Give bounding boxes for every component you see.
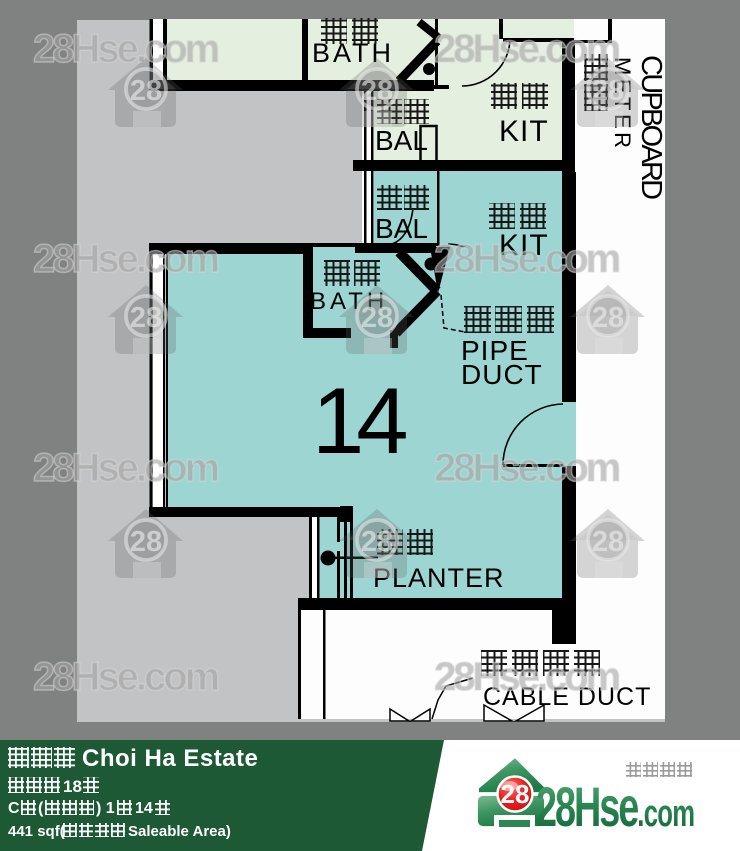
svg-text:CUPBOARD: CUPBOARD — [635, 55, 667, 199]
svg-text:(: ( — [38, 800, 44, 817]
svg-text:KIT: KIT — [499, 115, 549, 148]
svg-text:441 sqf(: 441 sqf( — [8, 823, 65, 840]
svg-text:) 1: ) 1 — [96, 800, 115, 817]
svg-text:14: 14 — [135, 800, 153, 817]
svg-text:Choi Ha Estate: Choi Ha Estate — [82, 745, 258, 772]
svg-text:14: 14 — [312, 368, 406, 473]
svg-text:18: 18 — [63, 777, 82, 796]
svg-text:C: C — [8, 800, 20, 817]
svg-text:BAL: BAL — [375, 125, 428, 156]
svg-text:Saleable Area): Saleable Area) — [128, 823, 231, 840]
svg-text:28: 28 — [501, 779, 530, 809]
svg-text:BAL: BAL — [375, 213, 428, 244]
svg-text:DUCT: DUCT — [461, 359, 543, 390]
